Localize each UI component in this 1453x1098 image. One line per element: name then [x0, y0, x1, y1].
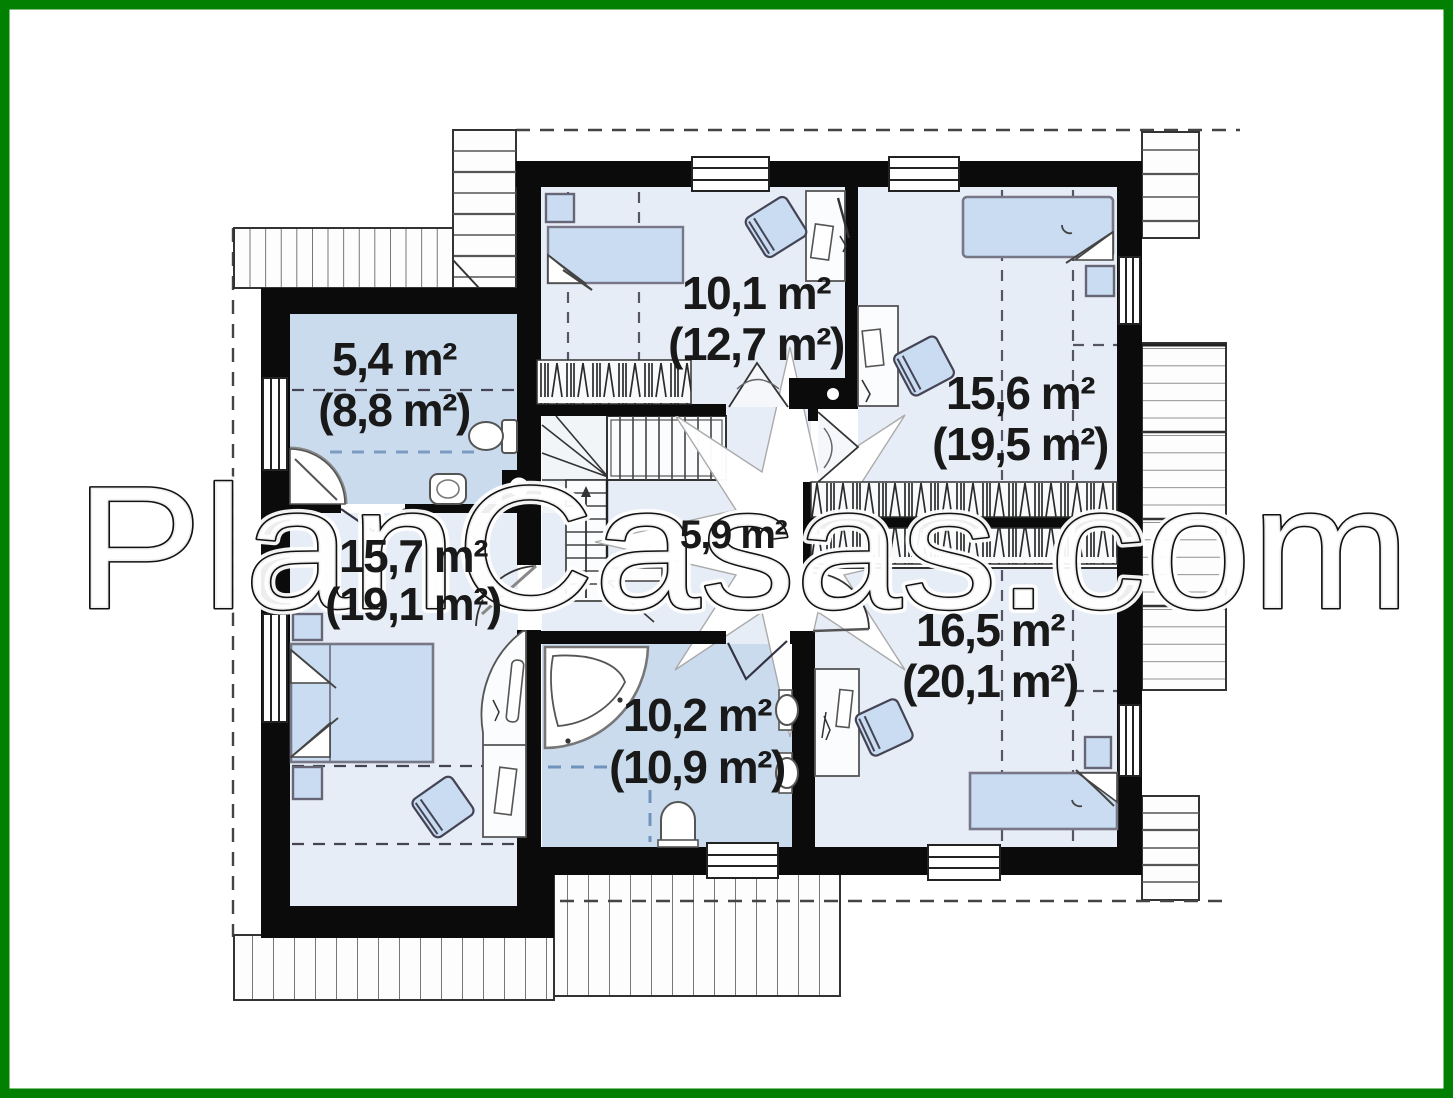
- svg-text:(19,1 m²): (19,1 m²): [325, 578, 501, 630]
- svg-text:16,5 m²: 16,5 m²: [916, 604, 1065, 656]
- svg-text:5,4 m²: 5,4 m²: [332, 333, 457, 385]
- svg-text:10,2 m²: 10,2 m²: [623, 689, 772, 741]
- svg-text:15,7 m²: 15,7 m²: [339, 530, 488, 582]
- svg-text:(20,1 m²): (20,1 m²): [902, 655, 1078, 707]
- svg-text:10,1 m²: 10,1 m²: [682, 267, 831, 319]
- svg-text:(10,9 m²): (10,9 m²): [609, 741, 785, 793]
- svg-text:(12,7 m²): (12,7 m²): [668, 318, 844, 370]
- svg-text:(19,5 m²): (19,5 m²): [932, 418, 1108, 470]
- svg-text:5,9 m²: 5,9 m²: [680, 513, 788, 557]
- svg-text:15,6 m²: 15,6 m²: [946, 367, 1095, 419]
- svg-text:(8,8 m²): (8,8 m²): [318, 384, 470, 436]
